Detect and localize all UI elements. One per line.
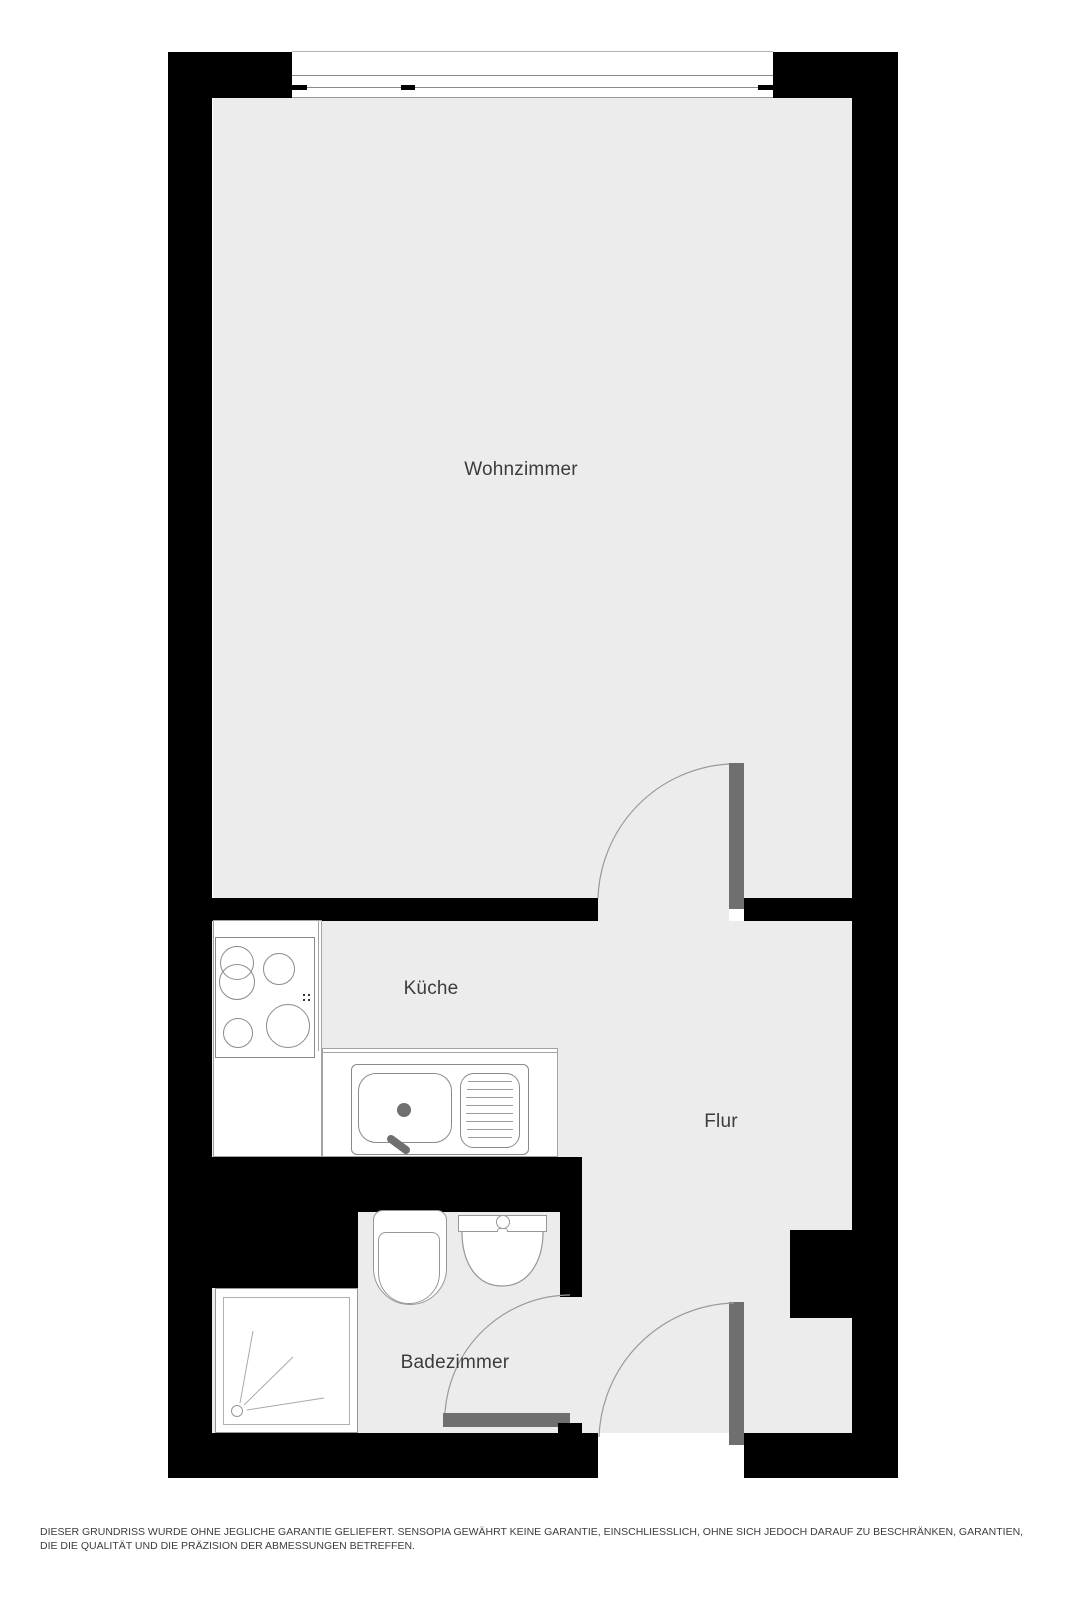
flur-right-wall-notch bbox=[790, 1230, 852, 1318]
right-outer-wall bbox=[852, 52, 898, 1478]
stove-burner-top-left-b bbox=[219, 964, 255, 1000]
floorplan-page: Wohnzimmer Küche Flur Badezimmer DIESER … bbox=[0, 0, 1067, 1600]
stove-burner-top-right bbox=[263, 953, 295, 985]
livingroom-door-leaf bbox=[729, 763, 744, 909]
bottom-wall-right bbox=[744, 1433, 898, 1478]
room-label-kueche: Küche bbox=[404, 978, 459, 1000]
drainboard-slat bbox=[468, 1081, 512, 1082]
room-label-flur: Flur bbox=[704, 1111, 738, 1133]
livingroom-kitchen-wall bbox=[168, 898, 598, 921]
window-glass-line-1 bbox=[292, 75, 773, 76]
window-glass-line-2 bbox=[292, 87, 773, 88]
window-jamb-tick-left bbox=[292, 85, 307, 90]
drainboard-slat bbox=[468, 1137, 512, 1138]
drainboard-slat bbox=[466, 1105, 513, 1106]
entrance-door-leaf bbox=[729, 1302, 744, 1445]
stove-control-dot bbox=[308, 999, 310, 1001]
kitchen-counter-edge-line bbox=[318, 921, 319, 1051]
bathroom-left-wall-mass bbox=[168, 1157, 358, 1288]
stove-control-dot bbox=[308, 994, 310, 996]
washbasin-drain bbox=[495, 1251, 511, 1267]
drainboard-slat bbox=[466, 1113, 513, 1114]
drainboard-slat bbox=[466, 1097, 513, 1098]
stove-burner-bottom-right bbox=[266, 1004, 310, 1048]
stove-control-dot bbox=[303, 999, 305, 1001]
bathroom-right-wall bbox=[560, 1157, 582, 1297]
kitchen-faucet-dot bbox=[397, 1103, 411, 1117]
window-jamb-tick-right bbox=[758, 85, 773, 90]
bathroom-door-step bbox=[558, 1423, 582, 1435]
bathroom-door-leaf bbox=[443, 1413, 570, 1427]
door-opening-floor-patch bbox=[598, 898, 729, 921]
room-label-wohnzimmer: Wohnzimmer bbox=[464, 459, 578, 481]
disclaimer-text: DIESER GRUNDRISS WURDE OHNE JEGLICHE GAR… bbox=[40, 1526, 1025, 1554]
window-mullion-tick bbox=[401, 85, 415, 90]
wohnzimmer-floor bbox=[213, 97, 852, 898]
livingroom-flur-wall bbox=[744, 898, 852, 921]
bathroom-top-wall bbox=[358, 1178, 562, 1212]
shower-drain bbox=[231, 1405, 243, 1417]
room-label-badezimmer: Badezimmer bbox=[401, 1352, 510, 1374]
drainboard-slat bbox=[467, 1089, 513, 1090]
bottom-wall-left bbox=[168, 1433, 598, 1478]
washbasin-faucet-base bbox=[496, 1215, 510, 1229]
top-left-wall-block bbox=[168, 52, 292, 98]
window-outer-line bbox=[292, 51, 773, 52]
stove-control-dot bbox=[303, 994, 305, 996]
drainboard-slat bbox=[467, 1129, 513, 1130]
kitchen-counter-front-line bbox=[322, 1052, 558, 1053]
top-right-wall-block bbox=[773, 52, 898, 98]
shower-tray-inner bbox=[223, 1297, 350, 1425]
drainboard-slat bbox=[466, 1121, 513, 1122]
washbasin-faucet-stem bbox=[497, 1228, 508, 1248]
toilet-bowl bbox=[378, 1232, 440, 1304]
stove-burner-bottom-left bbox=[223, 1018, 253, 1048]
